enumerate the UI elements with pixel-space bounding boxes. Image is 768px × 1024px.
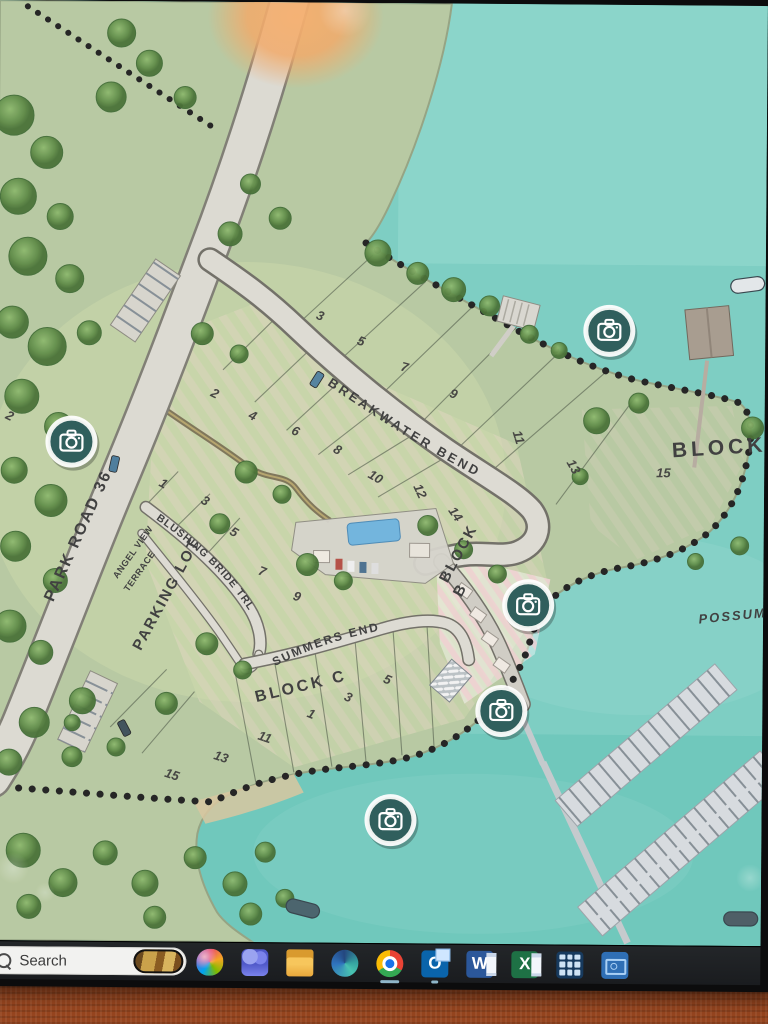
file-explorer-icon[interactable] xyxy=(286,949,313,976)
chrome-icon[interactable] xyxy=(376,950,403,977)
search-icon xyxy=(0,953,11,968)
monitor: 23579111324681012141357915531111315 PARK… xyxy=(0,0,768,992)
outlook-active-indicator xyxy=(431,980,438,983)
search-box[interactable]: Search xyxy=(0,946,186,976)
edge-icon[interactable] xyxy=(331,949,358,976)
scanner-app-icon[interactable] xyxy=(601,951,628,978)
excel-icon[interactable]: X xyxy=(511,951,538,978)
copilot-icon[interactable] xyxy=(196,948,223,975)
excel-letter: X xyxy=(519,954,531,974)
calculator-app-icon[interactable] xyxy=(556,951,583,978)
outlook-icon[interactable]: O xyxy=(421,950,448,977)
teams-icon[interactable] xyxy=(241,948,268,975)
screen: 23579111324681012141357915531111315 PARK… xyxy=(0,0,768,946)
search-highlight-thumbnail[interactable] xyxy=(133,949,183,973)
excel-page xyxy=(531,953,541,976)
scanner-glyph xyxy=(605,958,626,974)
chrome-icon-center xyxy=(385,959,394,968)
taskbar: Search O W X xyxy=(0,940,760,985)
word-icon[interactable]: W xyxy=(466,950,493,977)
outlook-envelope xyxy=(435,948,450,961)
plat-map[interactable]: 23579111324681012141357915531111315 PARK… xyxy=(0,0,768,946)
search-label: Search xyxy=(19,952,133,970)
chrome-active-indicator xyxy=(380,980,399,983)
word-page xyxy=(486,952,496,975)
screen-glare xyxy=(0,0,768,946)
